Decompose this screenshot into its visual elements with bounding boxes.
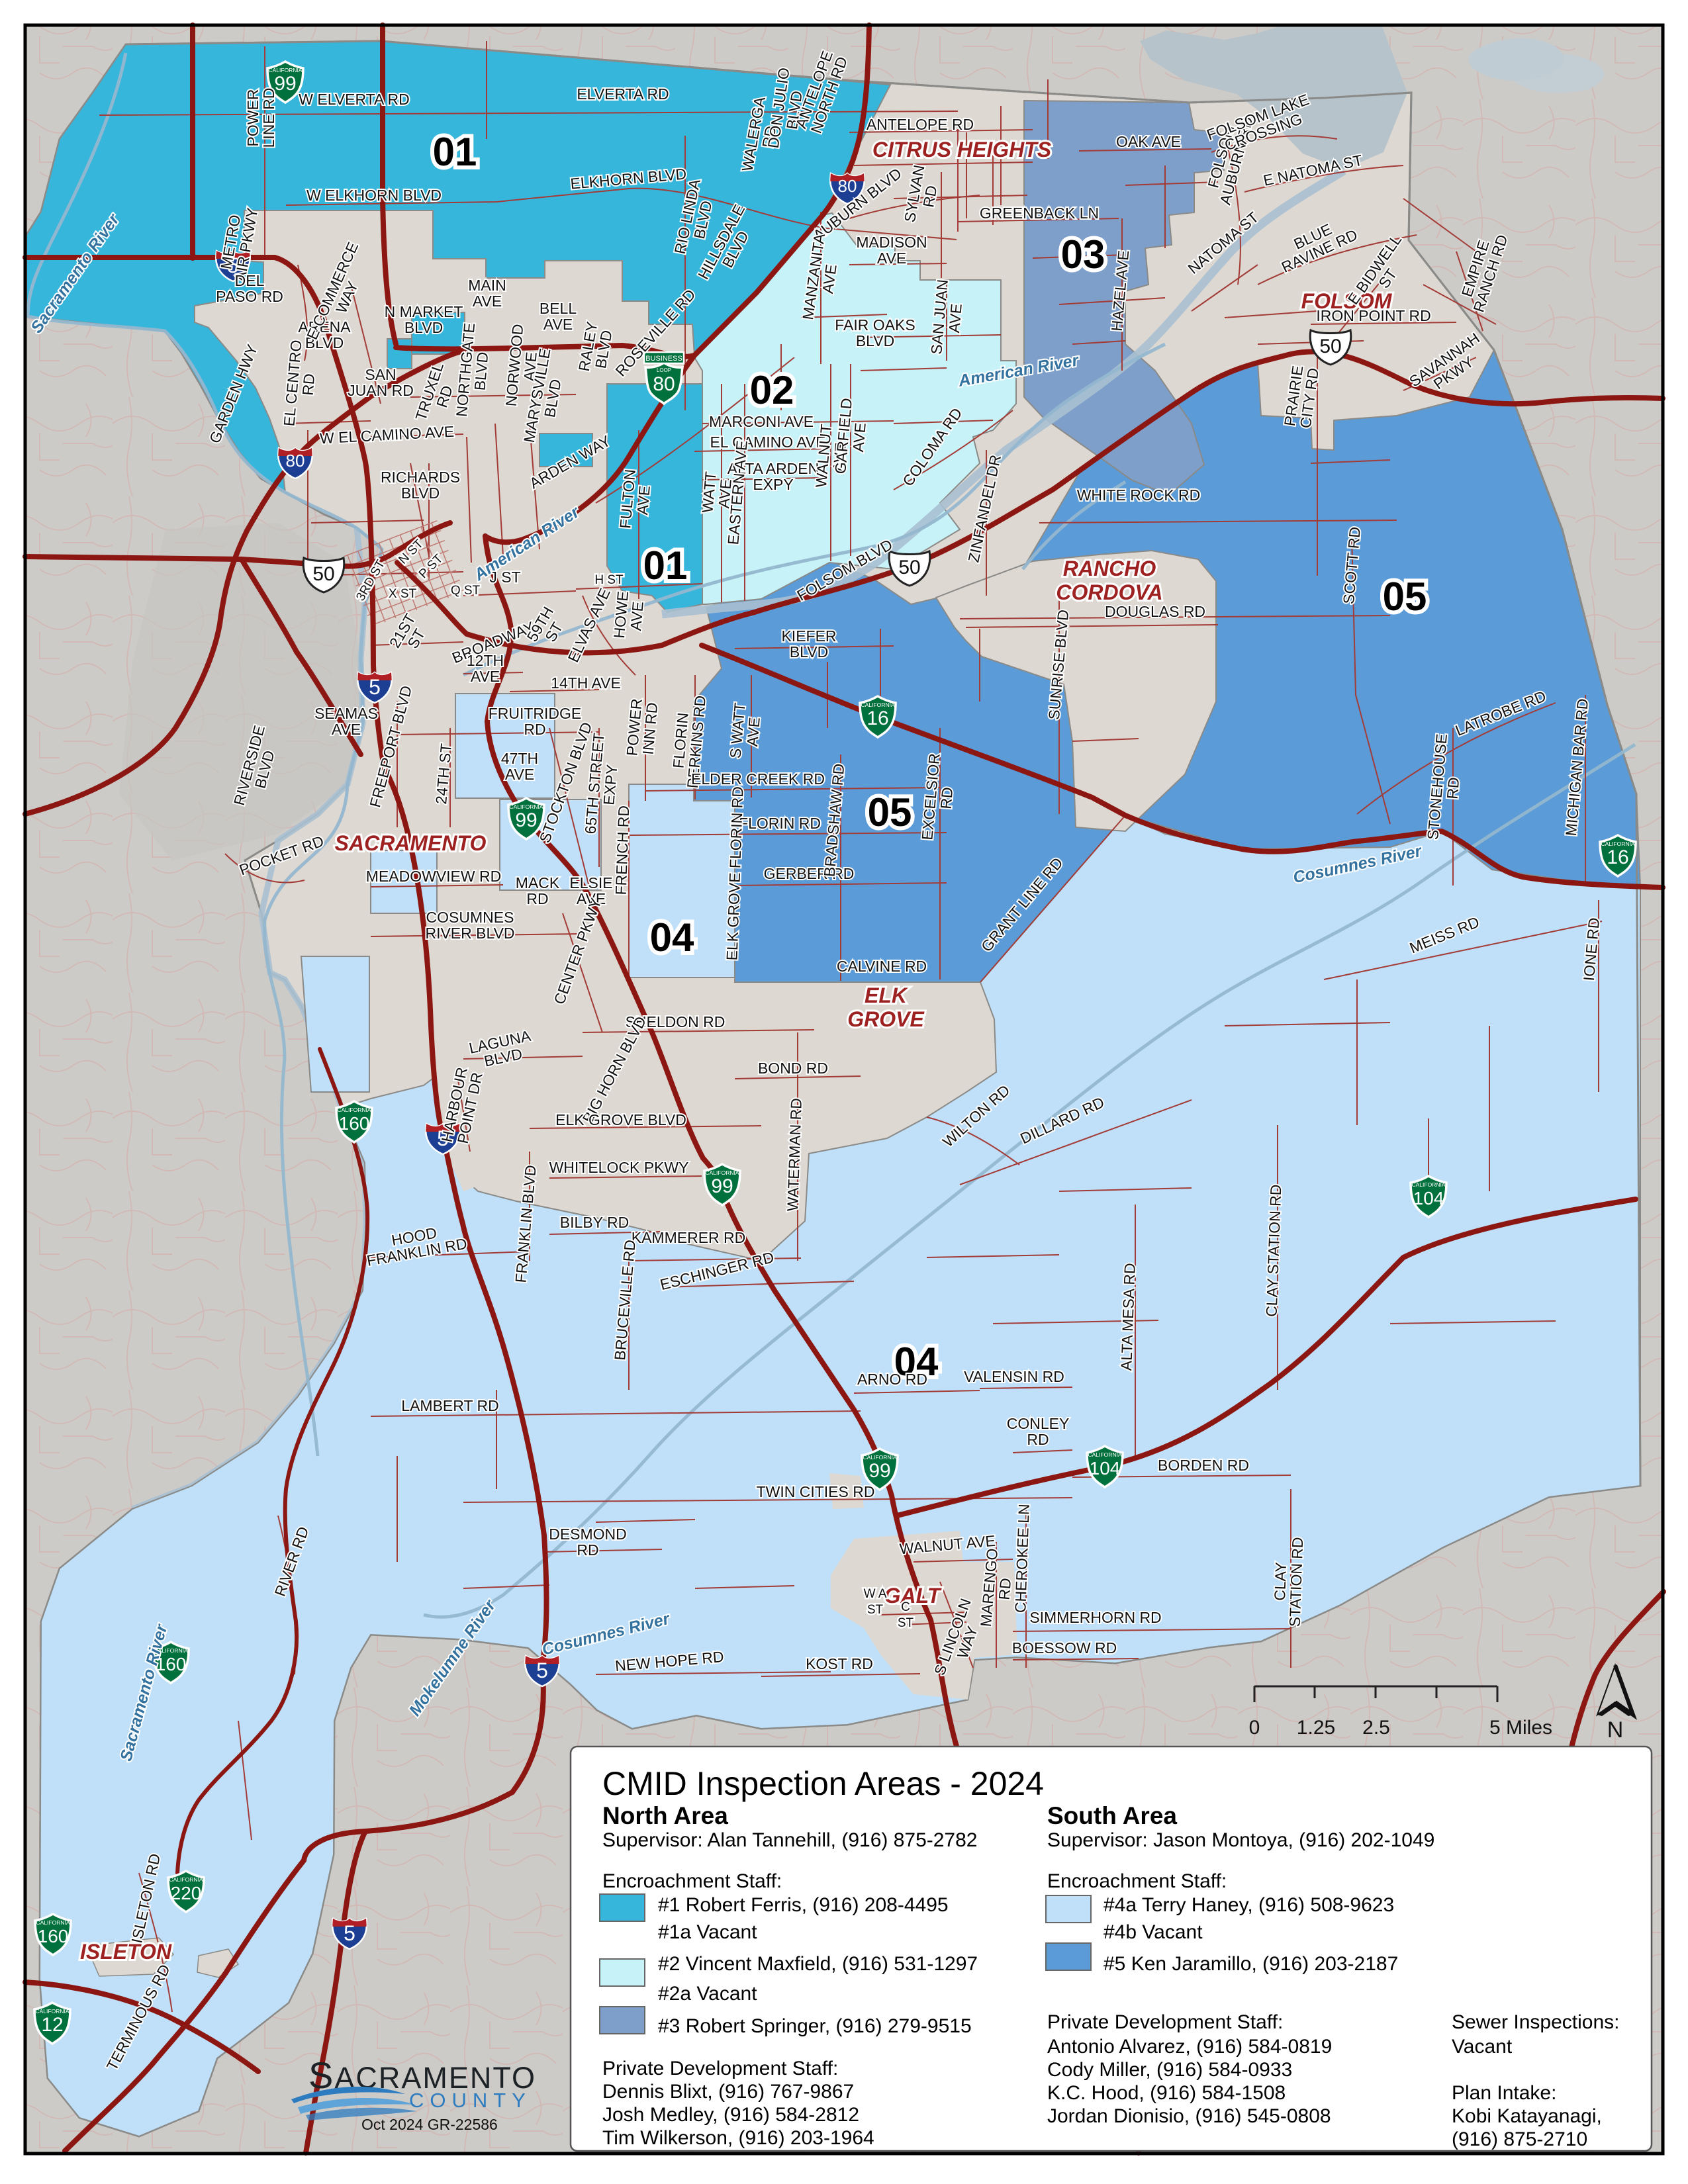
svg-text:OAK AVE: OAK AVE	[1116, 133, 1181, 150]
svg-text:99: 99	[868, 1460, 890, 1482]
svg-text:VALENSIN RD: VALENSIN RD	[964, 1368, 1064, 1385]
svg-text:GERBER RD: GERBER RD	[764, 865, 855, 882]
svg-text:5: 5	[369, 675, 381, 699]
svg-text:05: 05	[868, 790, 912, 835]
svg-text:104: 104	[1413, 1188, 1444, 1208]
svg-text:12THAVE: 12THAVE	[467, 652, 504, 685]
svg-text:Q ST: Q ST	[451, 584, 481, 598]
svg-text:ANTELOPE RD: ANTELOPE RD	[867, 116, 974, 133]
svg-text:BELLAVE: BELLAVE	[539, 300, 577, 333]
svg-text:220: 220	[171, 1883, 202, 1903]
svg-text:Plan Intake:: Plan Intake:	[1452, 2082, 1556, 2104]
svg-text:SIMMERHORN RD: SIMMERHORN RD	[1029, 1609, 1161, 1626]
svg-text:0: 0	[1249, 1717, 1260, 1739]
svg-text:#5 Ken Jaramillo, (916) 203-21: #5 Ken Jaramillo, (916) 203-2187	[1103, 1953, 1398, 1975]
svg-text:ISLETON: ISLETON	[80, 1940, 172, 1964]
svg-text:WHITELOCK PKWY: WHITELOCK PKWY	[549, 1159, 689, 1176]
svg-text:50: 50	[312, 563, 334, 585]
svg-text:Sewer Inspections:: Sewer Inspections:	[1452, 2011, 1619, 2033]
svg-text:Private Development Staff:: Private Development Staff:	[1047, 2011, 1283, 2033]
svg-text:BORDEN RD: BORDEN RD	[1158, 1457, 1249, 1474]
svg-text:50: 50	[898, 557, 920, 578]
svg-text:99: 99	[274, 73, 296, 95]
svg-text:North Area: North Area	[602, 1802, 728, 1829]
svg-text:Oct 2024 GR-22586: Oct 2024 GR-22586	[361, 2116, 498, 2133]
svg-text:80: 80	[838, 176, 857, 196]
svg-text:MAINAVE: MAINAVE	[468, 277, 506, 310]
svg-text:CORDOVA: CORDOVA	[1056, 580, 1162, 604]
svg-text:ELDER CREEK RD: ELDER CREEK RD	[691, 770, 825, 788]
svg-text:W ELVERTA RD: W ELVERTA RD	[299, 91, 409, 108]
svg-text:Kobi Katayanagi,: Kobi Katayanagi,	[1452, 2105, 1602, 2127]
svg-text:FLORIN RD: FLORIN RD	[739, 815, 821, 832]
svg-text:BOND RD: BOND RD	[758, 1060, 828, 1077]
svg-text:160: 160	[38, 1926, 69, 1946]
svg-text:5: 5	[536, 1659, 548, 1682]
svg-text:Tim Wilkerson, (916) 203-1964: Tim Wilkerson, (916) 203-1964	[602, 2127, 874, 2149]
svg-text:CALVINE RD: CALVINE RD	[837, 958, 927, 975]
svg-text:Cody Miller, (916) 584-0933: Cody Miller, (916) 584-0933	[1047, 2059, 1292, 2081]
svg-text:01: 01	[433, 130, 477, 174]
svg-text:#2a Vacant: #2a Vacant	[658, 1983, 757, 2005]
svg-text:X ST: X ST	[389, 587, 417, 601]
svg-text:EL CAMINO AVE: EL CAMINO AVE	[710, 433, 825, 451]
svg-text:#3 Robert Springer, (916) 279-: #3 Robert Springer, (916) 279-9515	[658, 2015, 972, 2037]
svg-text:GROVE: GROVE	[847, 1007, 925, 1031]
svg-text:02: 02	[750, 368, 794, 412]
svg-text:99: 99	[711, 1175, 733, 1197]
svg-text:16: 16	[1607, 846, 1628, 868]
svg-text:(916) 875-2710: (916) 875-2710	[1452, 2128, 1587, 2150]
svg-text:KIEFERBLVD: KIEFERBLVD	[781, 627, 836, 660]
svg-text:GALT: GALT	[884, 1584, 942, 1608]
svg-text:Antonio Alvarez, (916) 584-081: Antonio Alvarez, (916) 584-0819	[1047, 2036, 1332, 2058]
svg-text:#4b Vacant: #4b Vacant	[1103, 1921, 1203, 1943]
svg-text:80: 80	[286, 451, 305, 471]
svg-text:47THAVE: 47THAVE	[501, 750, 538, 783]
svg-text:GREENBACK LN: GREENBACK LN	[980, 205, 1099, 222]
svg-text:2.5: 2.5	[1362, 1717, 1390, 1739]
svg-text:Josh Medley, (916) 584-2812: Josh Medley, (916) 584-2812	[602, 2104, 859, 2126]
svg-text:LOOP: LOOP	[657, 367, 671, 373]
svg-text:03: 03	[1061, 232, 1105, 277]
svg-text:04: 04	[650, 915, 694, 960]
svg-text:#1a Vacant: #1a Vacant	[658, 1921, 757, 1943]
svg-text:KAMMERER RD: KAMMERER RD	[632, 1229, 746, 1246]
svg-text:5 Miles: 5 Miles	[1489, 1717, 1552, 1739]
svg-text:Private Development Staff:: Private Development Staff:	[602, 2058, 838, 2079]
svg-text:COUNTY: COUNTY	[409, 2089, 532, 2112]
svg-text:5: 5	[344, 1921, 355, 1945]
svg-text:DOUGLAS RD: DOUGLAS RD	[1105, 603, 1205, 620]
svg-text:104: 104	[1090, 1458, 1121, 1479]
svg-text:ARNO RD: ARNO RD	[857, 1371, 927, 1388]
svg-text:#1 Robert Ferris, (916) 208-44: #1 Robert Ferris, (916) 208-4495	[658, 1894, 949, 1916]
svg-text:POWERLINE RD: POWERLINE RD	[244, 88, 277, 148]
svg-text:IRON POINT RD: IRON POINT RD	[1316, 307, 1430, 324]
svg-text:FRENCH RD: FRENCH RD	[612, 805, 633, 895]
svg-text:W ELKHORN BLVD: W ELKHORN BLVD	[306, 187, 442, 204]
svg-text:#2 Vincent Maxfield, (916) 531: #2 Vincent Maxfield, (916) 531-1297	[658, 1953, 978, 1975]
svg-text:14TH AVE: 14TH AVE	[551, 674, 621, 692]
svg-text:SACRAMENTO: SACRAMENTO	[335, 831, 487, 855]
svg-text:KOST RD: KOST RD	[806, 1655, 873, 1672]
svg-text:#4a Terry Haney, (916) 508-962: #4a Terry Haney, (916) 508-9623	[1103, 1894, 1394, 1916]
svg-text:LAMBERT RD: LAMBERT RD	[401, 1397, 498, 1414]
svg-text:H ST: H ST	[594, 573, 624, 587]
svg-text:01: 01	[643, 543, 688, 588]
svg-text:Encroachment Staff:: Encroachment Staff:	[1047, 1870, 1227, 1892]
svg-text:Encroachment Staff:: Encroachment Staff:	[602, 1870, 782, 1892]
svg-text:05: 05	[1383, 574, 1427, 619]
svg-text:J ST: J ST	[489, 569, 520, 586]
svg-text:RANCHO: RANCHO	[1063, 557, 1156, 580]
svg-text:TWIN CITIES RD: TWIN CITIES RD	[757, 1483, 875, 1500]
svg-text:Supervisor: Jason Montoya, (91: Supervisor: Jason Montoya, (916) 202-104…	[1047, 1829, 1434, 1851]
svg-text:ELVERTA RD: ELVERTA RD	[577, 85, 669, 103]
svg-text:BUSINESS: BUSINESS	[645, 355, 682, 363]
svg-text:MEADOWVIEW RD: MEADOWVIEW RD	[366, 868, 501, 885]
svg-text:12: 12	[41, 2014, 63, 2036]
svg-text:BOESSOW RD: BOESSOW RD	[1012, 1639, 1117, 1657]
svg-text:MARCONI AVE: MARCONI AVE	[709, 413, 814, 430]
svg-text:Jordan Dionisio, (916) 545-080: Jordan Dionisio, (916) 545-0808	[1047, 2105, 1331, 2127]
svg-text:CITRUS HEIGHTS: CITRUS HEIGHTS	[872, 138, 1052, 161]
svg-text:ELK GROVE BLVD: ELK GROVE BLVD	[555, 1111, 686, 1128]
svg-text:BILBY RD: BILBY RD	[560, 1214, 629, 1231]
svg-text:Supervisor: Alan Tannehill, (9: Supervisor: Alan Tannehill, (916) 875-27…	[602, 1829, 977, 1851]
svg-text:1.25: 1.25	[1297, 1717, 1335, 1739]
svg-text:K.C. Hood, (916) 584-1508: K.C. Hood, (916) 584-1508	[1047, 2082, 1286, 2104]
svg-text:South Area: South Area	[1047, 1802, 1177, 1829]
svg-text:N: N	[1607, 1717, 1624, 1743]
svg-text:Vacant: Vacant	[1452, 2036, 1513, 2058]
svg-text:80: 80	[653, 373, 675, 395]
svg-text:COSUMNESRIVER BLVD: COSUMNESRIVER BLVD	[425, 909, 514, 942]
svg-text:CMID Inspection Areas - 2024: CMID Inspection Areas - 2024	[602, 1765, 1044, 1802]
svg-text:WHITE ROCK RD: WHITE ROCK RD	[1077, 486, 1201, 504]
svg-text:Dennis Blixt, (916) 767-9867: Dennis Blixt, (916) 767-9867	[602, 2081, 854, 2103]
svg-text:POWERINN RD: POWERINN RD	[623, 698, 661, 758]
svg-text:50: 50	[1319, 336, 1341, 357]
svg-text:16: 16	[867, 707, 888, 729]
svg-text:160: 160	[339, 1113, 370, 1134]
svg-text:ELK: ELK	[865, 983, 909, 1007]
svg-text:99: 99	[515, 809, 537, 831]
